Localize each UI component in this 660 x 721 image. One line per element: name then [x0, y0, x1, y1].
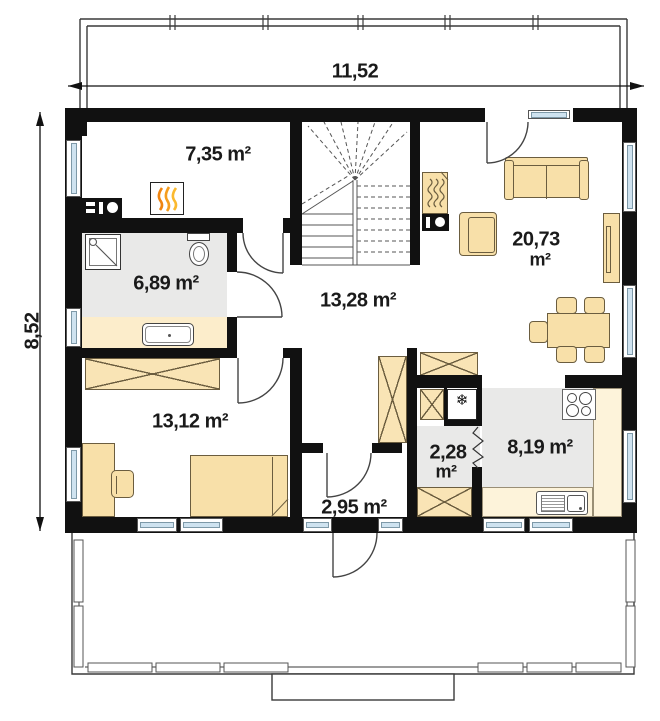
- window-pane: [627, 288, 633, 355]
- shower-tray: [89, 238, 117, 266]
- toilet-tank: [187, 233, 210, 241]
- sideboard: [420, 352, 478, 376]
- tv-cabinet: [603, 213, 620, 283]
- door-terrace: [333, 533, 377, 577]
- floor-plan: ❄: [0, 0, 660, 721]
- wall-pantry-left: [407, 348, 417, 527]
- wall-bedroom-top: [82, 348, 237, 358]
- unit-circle-icon: [435, 217, 445, 227]
- bed: [190, 455, 288, 517]
- bathtub-drain-icon: [168, 334, 171, 337]
- dining-chair: [584, 297, 605, 314]
- pantry-cabinet-top: [420, 389, 444, 420]
- window-left-bedroom: [66, 447, 81, 502]
- desk-chair: [111, 470, 134, 498]
- window-pane: [381, 522, 400, 528]
- exterior-wall-top-left: [65, 108, 485, 122]
- dim-width-label: 11,52: [332, 61, 378, 84]
- window-bottom-kitchen-1: [483, 518, 525, 532]
- sofa-cushion-divider: [546, 166, 547, 199]
- utility-appliance-block: [82, 198, 122, 218]
- dining-chair: [584, 346, 605, 363]
- window-pane: [183, 522, 220, 528]
- terrace-steps: [272, 674, 454, 700]
- wall-fridge-right: [477, 388, 482, 425]
- tv-screen: [606, 226, 611, 273]
- window-left-utility: [66, 140, 81, 197]
- room-label-kitchen: 8,19 m²: [507, 437, 572, 460]
- burner-icon: [579, 392, 592, 405]
- fireplace: [150, 182, 184, 215]
- burner-icon: [566, 404, 579, 417]
- kitchen-sink: [536, 491, 588, 515]
- radiator-squiggle-icon: [423, 173, 447, 213]
- dining-table: [547, 313, 610, 348]
- room-label-bathroom: 6,89 m²: [133, 273, 198, 296]
- toilet-bowl: [189, 242, 209, 266]
- dining-chair: [556, 346, 577, 363]
- wall-bathroom-right-a: [227, 233, 237, 272]
- window-pane: [531, 112, 567, 118]
- unit-bar-icon: [426, 217, 430, 228]
- burner-icon: [581, 406, 591, 416]
- room-label-bedroom: 13,12 m²: [152, 411, 228, 434]
- window-pane: [71, 311, 77, 344]
- window-left-bathroom: [66, 308, 81, 347]
- window-right-kitchen: [623, 430, 636, 503]
- wall-bedroom-right: [290, 348, 302, 533]
- wall-utility-bottom: [82, 218, 243, 233]
- dim-height-label: 8,52: [22, 313, 45, 350]
- sofa: [505, 157, 588, 198]
- window-bottom-bedroom-2: [180, 518, 223, 532]
- door-bathroom: [237, 272, 282, 317]
- stair-side-unit: [422, 214, 449, 231]
- door-vestibule: [327, 453, 371, 497]
- flame-icon: [152, 184, 182, 213]
- sink-drainer: [541, 495, 565, 512]
- door-bedroom: [238, 358, 283, 403]
- burner-icon: [567, 393, 577, 403]
- window-bottom-bedroom-1: [137, 518, 177, 532]
- window-bottom-vestibule-2: [378, 518, 403, 532]
- pantry-cabinet-bottom: [417, 487, 472, 517]
- window-right-living-1: [623, 142, 636, 212]
- fridge: ❄: [447, 389, 477, 420]
- terrace-railing-slots: [74, 540, 635, 672]
- window-pane: [71, 143, 77, 194]
- appliance-icon: [86, 209, 95, 213]
- appliance-icon: [99, 202, 103, 214]
- wall-vestibule-top-b: [372, 443, 402, 453]
- dining-chair: [529, 321, 548, 343]
- wall-vestibule-top-a: [302, 443, 323, 453]
- entrance-sidelight: [528, 110, 570, 119]
- window-bottom-vestibule-1: [303, 518, 332, 532]
- armchair: [459, 212, 497, 256]
- window-pane: [306, 522, 329, 528]
- wall-kitchen-top-b: [565, 375, 622, 388]
- terrace-outline: [72, 533, 634, 674]
- room-label-vestibule: 2,95 m²: [321, 497, 386, 520]
- sofa-arm-left: [504, 160, 514, 200]
- kitchen-counter-right: [593, 388, 622, 517]
- sofa-arm-right: [579, 160, 589, 200]
- window-pane: [627, 433, 633, 500]
- chimney-block: [65, 108, 87, 136]
- snowflake-icon: ❄: [448, 393, 476, 408]
- staircase: [302, 122, 410, 265]
- room-label-living-unit: m²: [530, 250, 551, 271]
- stove: [562, 389, 596, 420]
- room-label-living-value: 20,73: [512, 229, 560, 252]
- bed-headboard-line: [272, 457, 273, 515]
- room-label-hall: 13,28 m²: [320, 290, 396, 313]
- sink-bowl: [567, 495, 585, 512]
- window-pane: [532, 522, 570, 528]
- toilet-bowl-inner: [193, 246, 205, 262]
- wall-stairs-left: [290, 122, 302, 265]
- shower: [85, 234, 121, 270]
- appliance-icon: [86, 202, 95, 206]
- chair-back: [112, 476, 117, 494]
- room-label-utility: 7,35 m²: [185, 144, 250, 167]
- sofa-back: [506, 158, 587, 166]
- window-pane: [486, 522, 522, 528]
- hall-wardrobe: [378, 356, 407, 443]
- door-utility: [243, 233, 283, 273]
- window-pane: [140, 522, 174, 528]
- window-right-living-2: [623, 285, 636, 358]
- radiator: [422, 172, 448, 214]
- armchair-seat: [468, 217, 495, 253]
- window-pane: [71, 450, 77, 499]
- wall-kitchen-top-a: [417, 375, 482, 388]
- bedroom-wardrobe: [85, 358, 220, 390]
- basin-icon: [107, 202, 118, 213]
- wall-pantry-kitchen: [472, 467, 482, 517]
- dining-chair: [556, 297, 577, 314]
- bathtub: [142, 323, 194, 346]
- room-label-pantry-unit: m²: [436, 462, 457, 483]
- window-pane: [627, 145, 633, 209]
- sink-drain-icon: [579, 507, 582, 510]
- wall-stairs-right: [410, 122, 420, 265]
- window-bottom-kitchen-2: [529, 518, 573, 532]
